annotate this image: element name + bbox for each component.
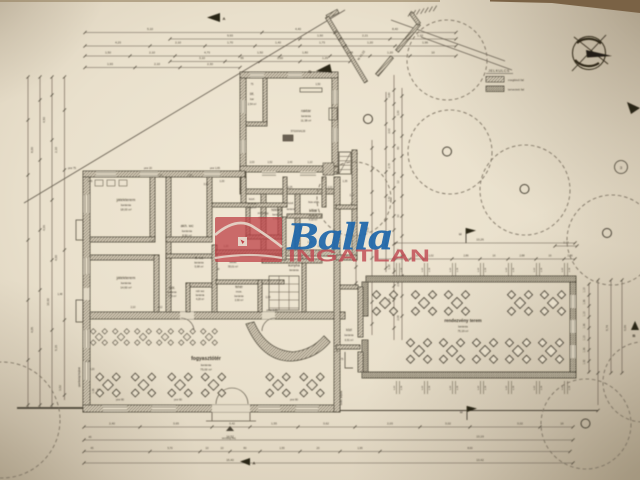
svg-text:1,36: 1,36 bbox=[583, 323, 586, 328]
svg-text:4,06: 4,06 bbox=[42, 225, 46, 231]
svg-text:3,62: 3,62 bbox=[323, 422, 329, 426]
svg-text:10: 10 bbox=[431, 51, 435, 55]
svg-text:1,00: 1,00 bbox=[396, 110, 400, 116]
svg-text:3,42: 3,42 bbox=[229, 422, 235, 426]
svg-text:1,70: 1,70 bbox=[227, 41, 233, 45]
svg-text:2,10: 2,10 bbox=[149, 51, 155, 55]
svg-text:2,25: 2,25 bbox=[288, 186, 293, 189]
svg-text:kerámia: kerámia bbox=[194, 261, 204, 265]
svg-text:1,35: 1,35 bbox=[88, 180, 93, 183]
svg-text:kerámia: kerámia bbox=[289, 268, 299, 272]
svg-text:fehér: fehér bbox=[235, 285, 243, 289]
svg-text:1,10: 1,10 bbox=[417, 34, 423, 38]
svg-text:pmm 1,09: pmm 1,09 bbox=[266, 309, 278, 312]
svg-text:3,10: 3,10 bbox=[199, 56, 205, 60]
svg-text:3,02: 3,02 bbox=[517, 422, 523, 426]
svg-text:1,48: 1,48 bbox=[58, 293, 63, 296]
svg-text:18,03 m²: 18,03 m² bbox=[120, 208, 131, 212]
svg-text:4,16 m²: 4,16 m² bbox=[248, 207, 257, 210]
svg-text:75,00 m²: 75,00 m² bbox=[200, 368, 211, 372]
svg-text:INGATLAN: INGATLAN bbox=[288, 246, 430, 266]
svg-text:1,45: 1,45 bbox=[334, 350, 339, 353]
svg-text:A: A bbox=[223, 16, 226, 21]
svg-text:1,38: 1,38 bbox=[92, 388, 95, 393]
svg-text:kerámia: kerámia bbox=[458, 325, 468, 329]
svg-text:2,15: 2,15 bbox=[563, 241, 569, 245]
svg-text:1,40: 1,40 bbox=[275, 41, 281, 45]
svg-text:1,90: 1,90 bbox=[317, 34, 323, 38]
svg-text:2,10: 2,10 bbox=[54, 147, 58, 153]
svg-text:1,73: 1,73 bbox=[319, 41, 325, 45]
svg-text:hűtőkra.: hűtőkra. bbox=[271, 208, 283, 212]
svg-text:3,10: 3,10 bbox=[204, 183, 209, 186]
svg-text:B: B bbox=[633, 333, 636, 338]
svg-text:1,52: 1,52 bbox=[268, 161, 273, 164]
svg-text:raktár: raktár bbox=[301, 109, 311, 113]
svg-text:pmr 80: pmr 80 bbox=[174, 399, 182, 402]
svg-text:0,60: 0,60 bbox=[387, 92, 391, 98]
svg-text:játékterem: játékterem bbox=[116, 275, 136, 280]
svg-text:6,91 m²: 6,91 m² bbox=[345, 339, 354, 342]
svg-text:ölt.: ölt. bbox=[250, 92, 254, 96]
svg-text:1,96: 1,96 bbox=[422, 41, 428, 45]
svg-text:5,10: 5,10 bbox=[147, 27, 153, 31]
svg-text:8,00: 8,00 bbox=[467, 446, 473, 450]
svg-text:13,26: 13,26 bbox=[476, 238, 484, 242]
svg-text:1,20: 1,20 bbox=[367, 41, 373, 45]
svg-text:1,10: 1,10 bbox=[583, 311, 586, 316]
svg-text:2,02: 2,02 bbox=[387, 128, 391, 134]
svg-text:pmr 80: pmr 80 bbox=[116, 399, 124, 402]
svg-text:mos.: mos. bbox=[236, 290, 243, 294]
svg-text:1,00: 1,00 bbox=[220, 180, 225, 183]
svg-text:1,88: 1,88 bbox=[347, 51, 353, 55]
svg-text:kerámia: kerámia bbox=[121, 203, 131, 207]
svg-text:1,35: 1,35 bbox=[86, 360, 91, 363]
svg-text:szem. bejárat: szem. bejárat bbox=[340, 390, 343, 405]
svg-text:1,93: 1,93 bbox=[107, 62, 113, 66]
svg-text:1,10: 1,10 bbox=[308, 161, 313, 164]
svg-text:5,70: 5,70 bbox=[167, 446, 173, 450]
svg-text:2,10: 2,10 bbox=[350, 194, 355, 197]
svg-text:1,10: 1,10 bbox=[583, 287, 586, 292]
svg-text:10,60: 10,60 bbox=[46, 298, 50, 306]
svg-text:9,93: 9,93 bbox=[227, 34, 233, 38]
svg-text:2,08: 2,08 bbox=[396, 315, 400, 321]
svg-text:2,10: 2,10 bbox=[154, 62, 160, 66]
svg-text:4,40: 4,40 bbox=[295, 27, 301, 31]
svg-text:A: A bbox=[253, 461, 256, 466]
svg-text:1,95: 1,95 bbox=[357, 446, 363, 450]
svg-text:1,50: 1,50 bbox=[257, 51, 263, 55]
svg-text:3,65: 3,65 bbox=[173, 422, 179, 426]
svg-text:2,21: 2,21 bbox=[362, 34, 368, 38]
svg-text:1,20: 1,20 bbox=[387, 51, 393, 55]
svg-text:4,00: 4,00 bbox=[54, 255, 58, 261]
svg-text:kerámia: kerámia bbox=[121, 281, 131, 285]
svg-text:57/16/NA130: 57/16/NA130 bbox=[291, 130, 306, 133]
svg-text:hús elők.: hús elők. bbox=[308, 200, 320, 204]
svg-text:D: D bbox=[309, 69, 312, 74]
svg-text:1,55: 1,55 bbox=[279, 446, 285, 450]
svg-text:2,03: 2,03 bbox=[250, 161, 255, 164]
svg-text:1,00: 1,00 bbox=[277, 56, 283, 60]
svg-text:pmr 1,65: pmr 1,65 bbox=[210, 167, 220, 170]
svg-text:zöldség: zöldség bbox=[258, 211, 269, 215]
svg-text:kerámia: kerámia bbox=[248, 203, 258, 206]
svg-text:11,38 m²: 11,38 m² bbox=[301, 119, 312, 123]
svg-text:kerámia: kerámia bbox=[287, 208, 296, 211]
svg-text:ffi. wc: ffi. wc bbox=[195, 256, 204, 260]
svg-text:3,02: 3,02 bbox=[58, 385, 62, 391]
svg-text:közl: közl bbox=[346, 328, 352, 332]
svg-text:2,10: 2,10 bbox=[131, 306, 136, 309]
svg-text:1,50: 1,50 bbox=[316, 83, 321, 86]
svg-text:55,01 m²: 55,01 m² bbox=[228, 266, 238, 269]
svg-text:kar: kar bbox=[250, 97, 254, 101]
svg-text:2,30: 2,30 bbox=[207, 62, 213, 66]
svg-text:8,50 m²: 8,50 m² bbox=[182, 234, 192, 238]
svg-text:8,40: 8,40 bbox=[392, 27, 398, 31]
svg-text:2,88: 2,88 bbox=[519, 254, 525, 258]
svg-text:női wc: női wc bbox=[196, 289, 205, 293]
svg-text:előt.: előt. bbox=[169, 286, 175, 290]
svg-text:4,23: 4,23 bbox=[115, 41, 121, 45]
svg-text:fogyasztótér: fogyasztótér bbox=[191, 356, 221, 362]
svg-text:2,54 m²: 2,54 m² bbox=[248, 103, 257, 106]
svg-text:1,42: 1,42 bbox=[387, 196, 391, 202]
svg-text:kerámia: kerámia bbox=[168, 291, 178, 294]
svg-text:akh. wc: akh. wc bbox=[181, 224, 194, 228]
svg-text:pmr 75: pmr 75 bbox=[68, 167, 76, 170]
svg-text:1,09: 1,09 bbox=[266, 296, 271, 299]
svg-text:1,65: 1,65 bbox=[188, 174, 193, 177]
svg-text:2,78: 2,78 bbox=[387, 163, 391, 169]
svg-text:rendezvény terem: rendezvény terem bbox=[444, 318, 481, 323]
svg-text:4,28 m²: 4,28 m² bbox=[196, 298, 204, 301]
svg-text:55: 55 bbox=[240, 56, 244, 60]
svg-text:meglévő fal: meglévő fal bbox=[508, 78, 524, 82]
svg-text:4,05: 4,05 bbox=[30, 327, 34, 333]
svg-text:5,15: 5,15 bbox=[54, 345, 58, 351]
svg-text:2,10: 2,10 bbox=[175, 41, 181, 45]
svg-text:1,55: 1,55 bbox=[271, 422, 277, 426]
svg-text:1,36: 1,36 bbox=[583, 299, 586, 304]
svg-text:közl.: közl. bbox=[288, 201, 294, 205]
svg-text:kerámia: kerámia bbox=[345, 334, 355, 337]
svg-text:2,10: 2,10 bbox=[328, 186, 333, 189]
svg-text:1,80: 1,80 bbox=[302, 51, 308, 55]
svg-text:1,35: 1,35 bbox=[343, 180, 348, 183]
svg-text:1,50: 1,50 bbox=[105, 51, 111, 55]
svg-text:pmr 80: pmr 80 bbox=[290, 399, 298, 402]
svg-text:1,10: 1,10 bbox=[583, 335, 586, 340]
svg-text:4,73: 4,73 bbox=[204, 51, 210, 55]
svg-text:kerámia: kerámia bbox=[201, 363, 212, 367]
svg-text:2,73 m²: 2,73 m² bbox=[168, 295, 177, 298]
svg-text:JELKULCS: JELKULCS bbox=[488, 69, 510, 73]
svg-text:kerámia: kerámia bbox=[182, 229, 192, 233]
svg-text:2,40: 2,40 bbox=[109, 422, 115, 426]
svg-text:2,12: 2,12 bbox=[158, 306, 163, 309]
svg-text:13,42: 13,42 bbox=[476, 458, 484, 462]
svg-text:2,40: 2,40 bbox=[288, 161, 293, 164]
svg-text:1,29: 1,29 bbox=[322, 56, 328, 60]
svg-text:16: 16 bbox=[560, 422, 564, 426]
svg-text:5,98 m²: 5,98 m² bbox=[195, 265, 204, 269]
svg-text:2,86: 2,86 bbox=[463, 254, 469, 258]
svg-text:gazdasági bejárat: gazdasági bejárat bbox=[78, 367, 81, 387]
svg-text:1,02: 1,02 bbox=[583, 359, 586, 364]
svg-text:14,60 m²: 14,60 m² bbox=[120, 286, 131, 290]
svg-text:75,19 m²: 75,19 m² bbox=[458, 329, 469, 333]
svg-text:játékterem: játékterem bbox=[116, 197, 136, 202]
svg-text:3,02: 3,02 bbox=[445, 422, 451, 426]
svg-text:kerámia: kerámia bbox=[273, 214, 283, 217]
svg-text:3,90 m²: 3,90 m² bbox=[235, 299, 244, 302]
svg-text:iroda: iroda bbox=[309, 209, 317, 213]
svg-text:1,05: 1,05 bbox=[150, 240, 155, 243]
svg-text:4,50: 4,50 bbox=[42, 117, 46, 123]
svg-text:kerámia: kerámia bbox=[301, 114, 311, 118]
svg-text:5,74: 5,74 bbox=[605, 325, 609, 331]
svg-text:1,36: 1,36 bbox=[583, 347, 586, 352]
svg-text:2,20: 2,20 bbox=[90, 368, 95, 371]
svg-text:pmr 20: pmr 20 bbox=[144, 167, 152, 170]
svg-text:kerámia: kerámia bbox=[235, 295, 245, 298]
svg-text:kerámia: kerámia bbox=[196, 294, 205, 297]
svg-text:15,40: 15,40 bbox=[226, 458, 234, 462]
svg-text:vendég bej.: vendég bej. bbox=[222, 436, 237, 440]
svg-text:2,03: 2,03 bbox=[387, 422, 393, 426]
svg-text:6,06: 6,06 bbox=[623, 325, 627, 331]
svg-text:közl.: közl. bbox=[249, 197, 255, 201]
svg-text:tervezett fal: tervezett fal bbox=[508, 88, 524, 92]
svg-text:13,19: 13,19 bbox=[476, 435, 484, 439]
svg-text:1,03: 1,03 bbox=[158, 174, 163, 177]
svg-text:8,00: 8,00 bbox=[30, 147, 34, 153]
